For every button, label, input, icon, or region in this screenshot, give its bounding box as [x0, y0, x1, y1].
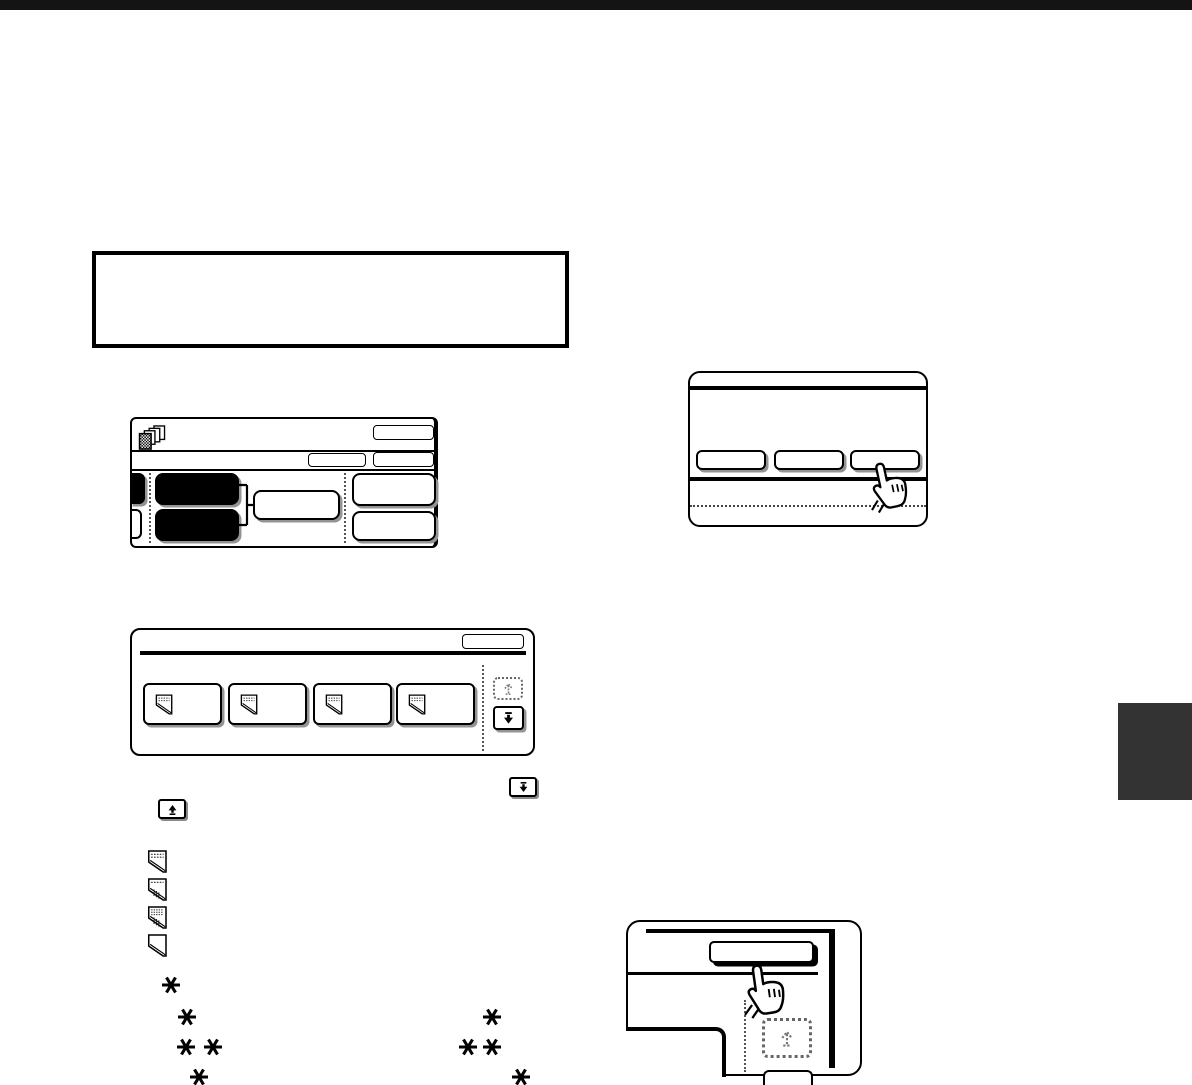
figure-store-panel	[626, 920, 862, 1076]
pointing-hand-icon	[732, 959, 791, 1022]
file-panel-separator	[482, 665, 484, 751]
screen-black-key-2[interactable]	[155, 509, 239, 541]
panel-button-2[interactable]	[774, 450, 844, 470]
scroll-to-top-icon	[777, 1026, 797, 1050]
screen-row2-button-2[interactable]	[373, 452, 434, 467]
document-dogear-icon	[320, 694, 343, 715]
scroll-up-button-disabled[interactable]	[493, 677, 523, 700]
store-top-button[interactable]	[709, 941, 814, 963]
inline-scroll-up-icon	[158, 799, 186, 819]
file-button-2[interactable]	[228, 683, 307, 725]
document-dogear-icon	[403, 694, 426, 715]
store-scroll-up-button-disabled[interactable]	[762, 1018, 812, 1058]
scroll-down-button[interactable]	[493, 706, 524, 730]
asterisk-icon	[510, 1066, 532, 1085]
store-inner-right-rule	[829, 929, 835, 1068]
document-text-icon	[141, 850, 168, 873]
asterisk-icon	[481, 1036, 503, 1058]
store-partial-key[interactable]	[626, 1027, 726, 1077]
screen-separator-dotted-2	[344, 473, 346, 543]
store-inner-top-rule	[646, 929, 832, 933]
page-top-rule	[0, 0, 1192, 10]
screen-top-right-button[interactable]	[373, 425, 434, 440]
asterisk-icon	[188, 1066, 210, 1085]
asterisk-icon	[176, 1006, 198, 1028]
pointing-hand-icon	[857, 456, 915, 517]
document-dogear-icon	[150, 694, 173, 715]
asterisk-icon	[481, 1006, 503, 1028]
document-chart-icon	[141, 878, 168, 901]
screen-white-key-center[interactable]	[253, 490, 340, 520]
callout-box	[92, 251, 569, 348]
store-scroll-down-button-partial[interactable]	[763, 1070, 813, 1085]
document-plain-icon	[141, 934, 168, 957]
asterisk-icon	[175, 1036, 197, 1058]
document-dogear-icon	[235, 694, 258, 715]
file-panel-rule	[140, 651, 526, 655]
file-panel-top-right-button[interactable]	[462, 634, 524, 649]
file-button-1[interactable]	[143, 683, 222, 725]
screen-white-key-right-1[interactable]	[352, 473, 436, 506]
figure-copier-screen	[130, 417, 438, 548]
section-tab	[1118, 703, 1192, 800]
document-dense-icon	[141, 906, 168, 929]
manual-page	[0, 0, 1192, 1085]
asterisk-icon	[457, 1036, 479, 1058]
file-button-3[interactable]	[313, 683, 392, 725]
screen-row2-button-1[interactable]	[308, 453, 366, 467]
stacked-copies-icon	[138, 425, 168, 450]
screen-key-partial-left[interactable]	[130, 473, 145, 504]
asterisk-icon	[160, 974, 182, 996]
panel-title-rule	[690, 386, 926, 390]
screen-white-key-right-2[interactable]	[352, 511, 436, 541]
asterisk-icon	[202, 1036, 224, 1058]
figure-button-row-panel	[688, 371, 928, 527]
scroll-to-bottom-icon	[501, 711, 516, 726]
inline-scroll-down-icon	[509, 777, 537, 797]
panel-button-1[interactable]	[696, 450, 766, 470]
figure-file-list-panel	[130, 628, 535, 756]
screen-divider-2	[132, 469, 434, 471]
scroll-to-top-icon	[501, 681, 516, 696]
file-button-4[interactable]	[396, 683, 475, 725]
store-thin-rule	[628, 972, 818, 975]
screen-black-key-1[interactable]	[155, 473, 239, 505]
brace-link	[238, 481, 254, 529]
screen-key-partial-left-2[interactable]	[130, 509, 142, 539]
screen-separator-dotted-1	[149, 473, 151, 543]
